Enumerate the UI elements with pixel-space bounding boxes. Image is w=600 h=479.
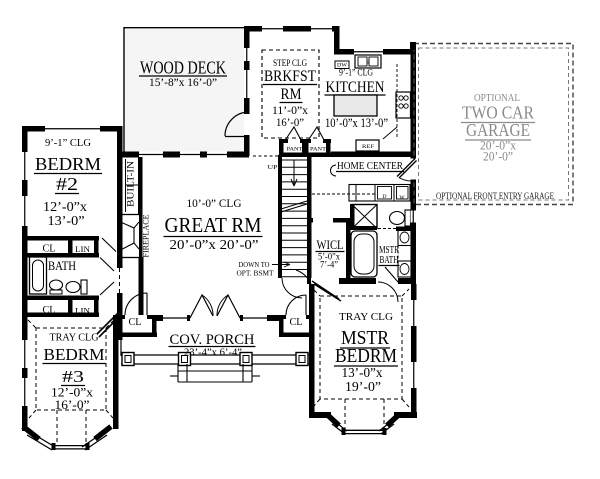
svg-text:FIREPLACE: FIREPLACE — [141, 215, 151, 258]
svg-text:16’-0”: 16’-0” — [55, 397, 90, 412]
svg-text:KITCHEN: KITCHEN — [326, 79, 385, 96]
svg-text:13’-0”x: 13’-0”x — [342, 366, 383, 381]
svg-text:WICL: WICL — [317, 237, 344, 252]
svg-text:BEDRM: BEDRM — [44, 345, 105, 364]
svg-text:12’-0”x: 12’-0”x — [43, 199, 87, 214]
svg-text:OPT. BSMT: OPT. BSMT — [237, 269, 274, 278]
svg-text:CL: CL — [43, 244, 56, 255]
svg-text:LIN: LIN — [75, 307, 90, 316]
svg-text:BEDRM: BEDRM — [35, 154, 101, 174]
svg-text:S: S — [367, 61, 370, 66]
svg-text:RM: RM — [281, 86, 302, 103]
svg-text:9’-1” CLG: 9’-1” CLG — [45, 138, 91, 149]
svg-text:OPTIONAL FRONT ENTRY GARAGE: OPTIONAL FRONT ENTRY GARAGE — [436, 192, 554, 202]
svg-text:CL: CL — [43, 305, 56, 316]
svg-text:19’-0”: 19’-0” — [345, 380, 381, 395]
svg-text:BEDRM: BEDRM — [335, 346, 397, 367]
svg-text:UP: UP — [268, 164, 278, 171]
svg-text:BATH: BATH — [380, 255, 399, 266]
svg-text:#2: #2 — [56, 174, 78, 194]
svg-text:BRKFST: BRKFST — [264, 68, 316, 85]
svg-text:13’-0”: 13’-0” — [48, 213, 85, 228]
svg-text:D: D — [383, 194, 387, 200]
svg-text:CL: CL — [129, 317, 142, 328]
svg-text:W: W — [399, 195, 405, 201]
svg-text:LIN: LIN — [75, 245, 90, 254]
svg-text:TRAY CLG: TRAY CLG — [339, 312, 393, 323]
svg-text:HOME CENTER: HOME CENTER — [337, 160, 404, 172]
svg-text:10’-0”x 13’-0”: 10’-0”x 13’-0” — [325, 116, 388, 130]
svg-text:REF: REF — [362, 145, 374, 150]
svg-text:BUILT-IN: BUILT-IN — [126, 160, 136, 207]
svg-text:15’-8”x 16’-0”: 15’-8”x 16’-0” — [149, 75, 217, 89]
svg-text:BATH: BATH — [48, 258, 76, 273]
svg-text:GARAGE: GARAGE — [466, 120, 530, 140]
svg-text:10’-0” CLG: 10’-0” CLG — [187, 198, 242, 210]
svg-text:STEP CLG: STEP CLG — [273, 58, 307, 68]
svg-text:20’-0”: 20’-0” — [483, 150, 513, 164]
svg-text:PANT: PANT — [287, 147, 304, 153]
svg-text:TRAY CLG: TRAY CLG — [50, 333, 99, 344]
svg-text:GREAT RM: GREAT RM — [165, 213, 262, 237]
svg-text:16’-0”: 16’-0” — [276, 115, 304, 129]
svg-text:CL: CL — [290, 317, 303, 328]
svg-text:PANT: PANT — [310, 147, 327, 153]
svg-text:DW: DW — [337, 64, 348, 69]
svg-text:7’-4”: 7’-4” — [320, 260, 338, 270]
svg-text:23’-4”x 6’-4”: 23’-4”x 6’-4” — [184, 347, 242, 359]
svg-text:20’-0”x 20’-0”: 20’-0”x 20’-0” — [170, 238, 259, 253]
svg-text:#3: #3 — [62, 367, 84, 386]
